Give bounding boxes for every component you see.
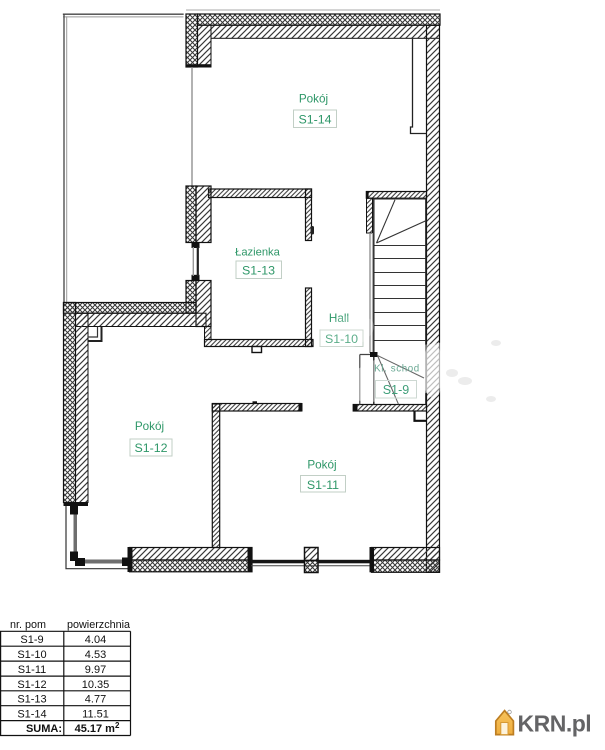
svg-text:9.97: 9.97 bbox=[85, 664, 106, 676]
svg-text:S1-11: S1-11 bbox=[307, 478, 339, 492]
svg-text:S1-9: S1-9 bbox=[20, 634, 43, 646]
svg-text:S1-12: S1-12 bbox=[17, 679, 46, 691]
svg-text:Pokój: Pokój bbox=[307, 459, 336, 472]
svg-text:11.51: 11.51 bbox=[82, 709, 109, 721]
svg-text:Pokój: Pokój bbox=[299, 92, 328, 105]
svg-text:4.77: 4.77 bbox=[85, 694, 106, 706]
svg-text:S1-9: S1-9 bbox=[383, 383, 409, 397]
svg-text:Łazienka: Łazienka bbox=[235, 247, 281, 259]
svg-text:nr. pom: nr. pom bbox=[10, 619, 46, 631]
svg-text:S1-14: S1-14 bbox=[298, 113, 331, 127]
svg-text:4.53: 4.53 bbox=[85, 649, 106, 661]
svg-text:10.35: 10.35 bbox=[82, 679, 110, 691]
svg-text:S1-10: S1-10 bbox=[17, 649, 46, 661]
svg-text:S1-14: S1-14 bbox=[17, 709, 46, 721]
svg-text:Kl. schod: Kl. schod bbox=[374, 363, 420, 374]
svg-text:45.17 m2: 45.17 m2 bbox=[75, 721, 120, 735]
svg-text:KRN.pl: KRN.pl bbox=[518, 711, 592, 737]
svg-text:Pokój: Pokój bbox=[135, 420, 164, 433]
svg-text:S1-12: S1-12 bbox=[134, 441, 167, 455]
svg-text:powierzchnia: powierzchnia bbox=[67, 619, 130, 631]
svg-text:S1-13: S1-13 bbox=[242, 264, 275, 278]
svg-text:4.04: 4.04 bbox=[85, 634, 106, 646]
svg-text:S1-13: S1-13 bbox=[17, 694, 46, 706]
svg-text:S1-11: S1-11 bbox=[18, 664, 47, 676]
svg-text:SUMA:: SUMA: bbox=[26, 723, 62, 735]
